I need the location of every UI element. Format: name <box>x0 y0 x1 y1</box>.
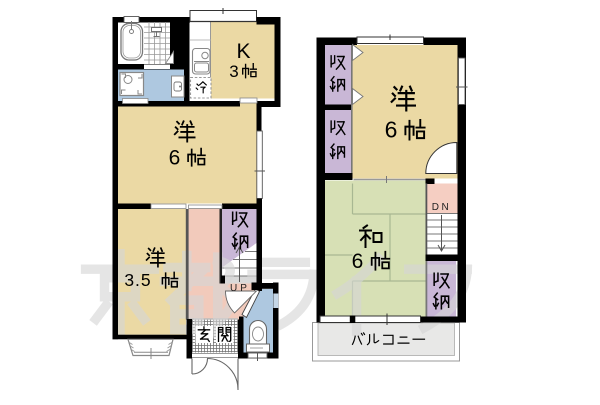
svg-text:3: 3 <box>229 62 238 81</box>
svg-text:UP: UP <box>230 283 250 294</box>
svg-text:DN: DN <box>432 202 451 213</box>
svg-text:6: 6 <box>169 147 181 170</box>
svg-text:3.5: 3.5 <box>124 270 151 290</box>
svg-text:6: 6 <box>352 250 364 273</box>
svg-text:6: 6 <box>385 117 398 143</box>
svg-text:K: K <box>236 40 250 63</box>
